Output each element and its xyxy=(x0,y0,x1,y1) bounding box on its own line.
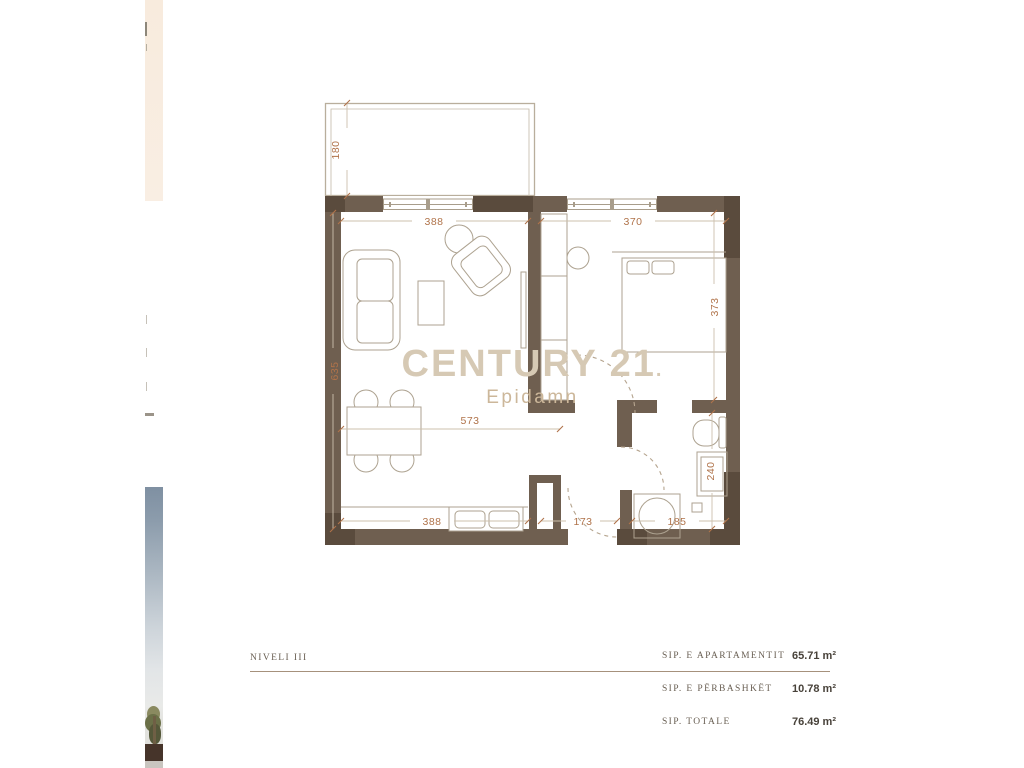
dining-table-with-chairs xyxy=(347,390,421,472)
toilet xyxy=(693,417,726,448)
area-row-value: 10.78 m² xyxy=(770,683,836,695)
dim-kitchen-width: 388 xyxy=(422,516,441,528)
dim-living-length: 573 xyxy=(460,415,479,427)
wardrobe xyxy=(541,214,567,400)
dim-living-width: 388 xyxy=(424,216,443,228)
area-row-value: 76.49 m² xyxy=(770,716,836,728)
bathroom-door-arc xyxy=(621,447,664,490)
dim-bathroom-depth: 240 xyxy=(705,461,717,480)
table-rule xyxy=(250,671,830,672)
sofa xyxy=(343,250,400,350)
area-row-value: 65.71 m² xyxy=(770,650,836,662)
dim-bedroom-width: 370 xyxy=(623,216,642,228)
bedroom-chair xyxy=(567,247,589,269)
floor-plan-drawing: 180 388 370 373 635 573 388 173 185 240 xyxy=(0,0,1024,768)
tv-unit xyxy=(521,272,526,348)
dim-balcony-depth: 180 xyxy=(330,140,342,159)
balcony-outline xyxy=(326,104,535,197)
area-row-label: SIP. E PËRBASHKËT xyxy=(662,684,773,694)
dim-bedroom-depth: 373 xyxy=(709,297,721,316)
dim-hallway-width: 173 xyxy=(573,516,592,528)
area-row-label: SIP. TOTALE xyxy=(662,717,731,727)
door-swing-arcs xyxy=(568,355,664,537)
entry-door-arc xyxy=(568,488,617,537)
dim-bathroom-width: 185 xyxy=(667,516,686,528)
listing-floorplan-page: 180 388 370 373 635 573 388 173 185 240 … xyxy=(0,0,1024,768)
area-row-label: SIP. E APARTAMENTIT xyxy=(662,651,785,661)
exterior-and-interior-walls xyxy=(325,196,740,545)
dim-living-depth: 635 xyxy=(329,361,341,380)
balcony-door-window xyxy=(383,196,473,212)
level-label: NIVELI III xyxy=(250,653,308,663)
bedroom-window xyxy=(567,196,657,212)
bathroom-accessory xyxy=(692,503,702,512)
coffee-table xyxy=(418,281,444,325)
